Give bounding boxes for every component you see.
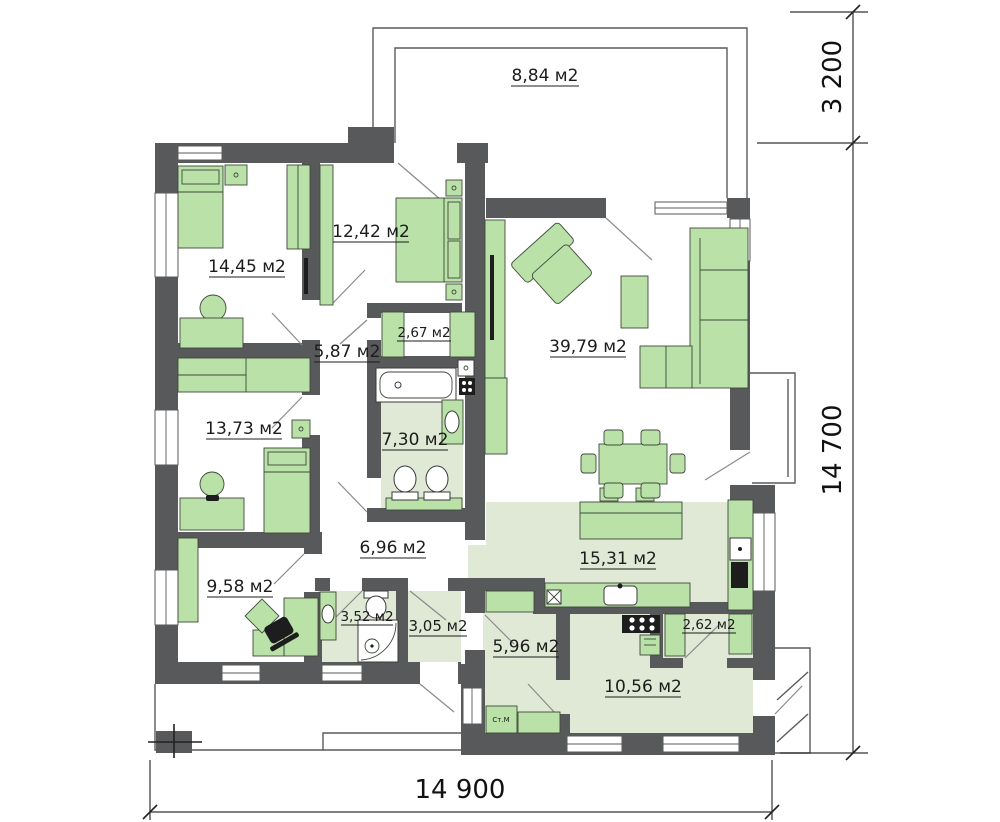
bidet-icon	[424, 492, 450, 500]
room-label-shower-room: 3,52 м2	[340, 609, 393, 625]
window-icon	[222, 665, 260, 681]
window-icon	[753, 513, 775, 591]
nightstand-icon	[225, 165, 247, 185]
shelf-icon	[450, 312, 475, 357]
room-label-terrace: 8,84 м2	[512, 66, 579, 86]
cabinet-icon	[485, 378, 507, 454]
floor-plan-page: Ст.М 8,84 м2 14,45 м2 12,42 м2 2,67 м2	[0, 0, 1000, 822]
chair-icon	[670, 454, 685, 473]
counter-icon	[486, 591, 534, 612]
room-label-kitchen: 15,31 м2	[579, 549, 657, 569]
room-label-utility-room: 5,96 м2	[493, 637, 560, 657]
rear-porch-outline	[775, 648, 810, 753]
room-label-bedroom-2: 12,42 м2	[332, 222, 410, 242]
side-landing-outline	[750, 373, 795, 483]
chair-icon	[641, 430, 660, 445]
coffee-table-icon	[621, 276, 648, 328]
room-label-office: 9,58 м2	[207, 577, 274, 597]
bedroom3-furniture	[178, 358, 310, 533]
window-icon	[178, 146, 222, 160]
chair-icon	[604, 483, 623, 498]
pillow-icon	[182, 170, 219, 184]
terrace-outline	[373, 28, 747, 198]
office-chair-icon	[200, 295, 226, 321]
wardrobe-icon	[320, 165, 333, 305]
room-label-bedroom-1: 14,45 м2	[208, 257, 286, 277]
counter-icon	[518, 712, 560, 733]
wardrobe-icon	[178, 538, 198, 622]
living-room-furniture	[485, 220, 748, 498]
window-icon	[655, 202, 727, 214]
dining-table-icon	[599, 444, 667, 484]
bathtub-icon	[376, 368, 456, 402]
window-icon	[663, 736, 739, 752]
window-icon	[322, 665, 362, 681]
room-label-closet: 2,67 м2	[397, 325, 450, 341]
room-label-entry-hall: 3,05 м2	[408, 617, 467, 635]
kitchen-island-icon	[580, 502, 682, 539]
pillow-icon	[448, 241, 460, 278]
dimension-label-total-height: 14 700	[818, 405, 848, 496]
front-porch-outline	[148, 684, 461, 758]
window-icon	[463, 688, 482, 724]
room-label-workshop: 10,56 м2	[604, 677, 682, 697]
walls	[155, 127, 775, 755]
nightstand-icon	[446, 284, 462, 300]
desk-icon	[180, 318, 243, 348]
chair-icon	[641, 483, 660, 498]
dimension-bottom: 14 900	[143, 760, 779, 820]
window-icon	[155, 193, 178, 277]
dimension-label-terrace-height: 3 200	[818, 40, 848, 114]
room-label-bedroom-3: 13,73 м2	[205, 419, 283, 439]
room-label-bathroom: 7,30 м2	[382, 430, 449, 450]
window-icon	[155, 570, 178, 625]
room-label-corridor: 6,96 м2	[360, 538, 427, 558]
tv-icon	[304, 258, 308, 294]
washing-machine-label: Ст.М	[492, 716, 509, 724]
sink-icon	[604, 586, 637, 605]
office-chair-icon	[200, 472, 224, 496]
floor-plan-drawing: Ст.М 8,84 м2 14,45 м2 12,42 м2 2,67 м2	[0, 0, 1000, 822]
pillow-icon	[268, 452, 306, 465]
room-label-hallway-1: 5,87 м2	[314, 342, 381, 362]
dimension-label-total-width: 14 900	[415, 775, 506, 805]
wardrobe-icon	[287, 165, 310, 249]
desk-icon	[180, 498, 244, 530]
room-label-pantry: 2,62 м2	[682, 617, 735, 633]
window-icon	[155, 410, 178, 465]
oven-icon	[731, 562, 748, 588]
water-heater-icon	[458, 360, 474, 376]
room-label-living-room: 39,79 м2	[549, 337, 627, 357]
nightstand-icon	[446, 180, 462, 196]
pillow-icon	[448, 202, 460, 239]
toilet-icon	[392, 492, 418, 500]
tv-cabinet-icon	[485, 220, 505, 378]
washer-icon	[459, 378, 475, 395]
nightstand-icon	[292, 420, 310, 438]
armchair-icon	[510, 222, 599, 311]
shower-icon	[358, 620, 398, 662]
sofa-icon	[690, 228, 748, 388]
chair-icon	[581, 454, 596, 473]
chair-icon	[604, 430, 623, 445]
tv-icon	[490, 255, 494, 340]
window-icon	[567, 736, 622, 752]
